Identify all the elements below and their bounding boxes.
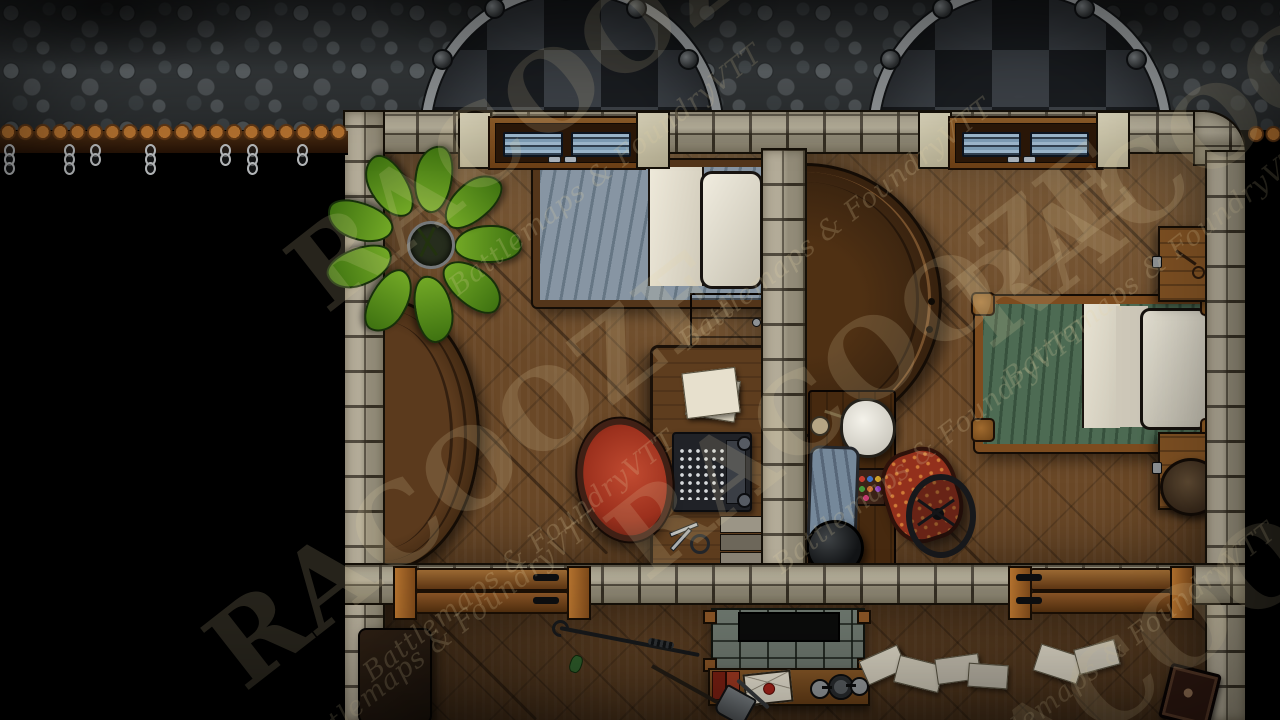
- typewriter-knob-icon: [737, 436, 752, 451]
- window-shutter: [503, 132, 563, 157]
- window-shutter: [962, 132, 1021, 157]
- typewriter-knob-icon: [737, 493, 752, 508]
- hanging-chain-icon: [90, 148, 101, 166]
- hanging-chain-icon: [247, 148, 258, 175]
- table-knob-icon: [926, 326, 933, 333]
- door-plank: [1030, 591, 1172, 614]
- fireplace-bracket: [857, 610, 871, 624]
- outside-black-right: [1245, 134, 1280, 720]
- window-right: [948, 116, 1104, 170]
- bed-post: [971, 292, 995, 316]
- dresser-knob-icon: [752, 318, 761, 327]
- typewriter-keys: [679, 448, 727, 500]
- window-latch-icon: [564, 156, 577, 163]
- palisade-logs: [0, 119, 348, 145]
- door-right: [1008, 566, 1190, 616]
- hanging-chain-icon: [297, 148, 308, 166]
- book: [720, 516, 766, 533]
- bed-green-pillow: [1140, 308, 1208, 430]
- plant-leaf: [454, 225, 522, 263]
- window-left: [488, 116, 646, 170]
- arch-stud-icon: [1126, 49, 1147, 70]
- pan-handle: [822, 686, 832, 689]
- typewriter: [672, 432, 752, 512]
- door-handle-icon: [533, 597, 559, 604]
- window-shutter: [571, 132, 631, 157]
- battlemap-stage: RACOOZE Battlemaps & FoundryVTT RACOOZE …: [0, 0, 1280, 720]
- dark-side-table: [358, 628, 432, 720]
- door-post: [567, 566, 591, 620]
- bed-blue-pillow: [700, 171, 763, 289]
- hanging-chain-icon: [64, 148, 75, 175]
- door-handle-icon: [1016, 597, 1042, 604]
- hanging-chain-icon: [4, 148, 15, 175]
- pan-icon: [810, 679, 830, 699]
- bed-green-sheet: [1082, 304, 1120, 428]
- door-handle-icon: [533, 574, 559, 581]
- nightstand-knob-icon: [1152, 462, 1162, 474]
- bed-post: [971, 418, 995, 442]
- key-icon: [1175, 249, 1196, 265]
- arch-stud-icon: [432, 49, 453, 70]
- scattered-paper: [967, 663, 1009, 690]
- door-post: [1170, 566, 1194, 620]
- paper-stack: [681, 367, 740, 419]
- outside-black-left: [0, 141, 345, 720]
- arch-stud-icon: [678, 49, 699, 70]
- window-latch-icon: [1007, 156, 1020, 163]
- door-plank: [1030, 568, 1172, 591]
- spinning-wheel-icon: [906, 474, 976, 558]
- door-left: [393, 566, 587, 616]
- wall-right: [1207, 152, 1245, 720]
- nightstand-knob-icon: [1152, 256, 1162, 268]
- window-latch-icon: [548, 156, 561, 163]
- pan-handle: [846, 684, 856, 687]
- bed-blue-sheet: [648, 167, 704, 286]
- book-stack: [720, 516, 764, 570]
- wax-seal-icon: [763, 682, 776, 695]
- ring-icon: [690, 534, 710, 554]
- palisade-logs-right: [1248, 121, 1280, 147]
- fireplace-bracket: [703, 610, 717, 624]
- table-knob-icon: [928, 298, 935, 305]
- wall-interior: [763, 150, 805, 568]
- fireplace-opening: [738, 612, 840, 642]
- window-shutter: [1030, 132, 1089, 157]
- hanging-chain-icon: [145, 148, 156, 175]
- key-icon: [1192, 266, 1205, 279]
- window-post: [920, 113, 950, 167]
- hanging-chain-icon: [220, 148, 231, 166]
- window-latch-icon: [1023, 156, 1036, 163]
- window-post: [1098, 113, 1128, 167]
- window-post: [638, 113, 668, 167]
- book: [720, 534, 766, 551]
- window-post: [460, 113, 490, 167]
- arch-stud-icon: [880, 49, 901, 70]
- ladle-bowl: [810, 416, 830, 436]
- door-handle-icon: [1016, 574, 1042, 581]
- book-emblem-icon: [1183, 688, 1194, 699]
- door-post: [393, 566, 417, 620]
